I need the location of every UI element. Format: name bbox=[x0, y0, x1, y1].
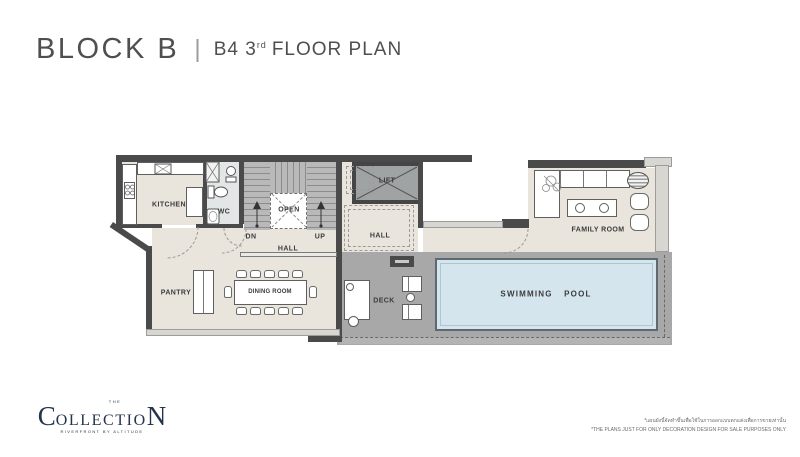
dining-chair bbox=[250, 270, 261, 278]
corridor-floor bbox=[423, 228, 528, 253]
wc-floor bbox=[207, 162, 239, 225]
sofa-chaise bbox=[534, 170, 560, 218]
wall bbox=[116, 155, 472, 162]
floor-label-ordinal: rd bbox=[257, 41, 267, 50]
pantry-cabinet bbox=[193, 270, 214, 314]
logo-name: COLLECTION bbox=[36, 404, 168, 428]
deck-edge-joint bbox=[664, 255, 665, 337]
disclaimer: *แผนผังนี้จัดทำขึ้นเพื่อใช้ในการออกแบบตก… bbox=[591, 417, 786, 435]
room-label-wc: WC bbox=[218, 209, 230, 216]
stair-label-up: UP bbox=[315, 234, 326, 241]
room-label-hall-upper: HALL bbox=[370, 233, 390, 240]
stair-label-dn: DN bbox=[246, 234, 257, 241]
floor-plan-title: B4 3rd FLOOR PLAN bbox=[214, 39, 402, 61]
room-label-lift: LIFT bbox=[379, 178, 395, 185]
wall bbox=[146, 246, 152, 334]
dining-chair bbox=[278, 270, 289, 278]
stair-flight-down bbox=[244, 162, 270, 230]
room-label-open: OPEN bbox=[278, 207, 299, 214]
title-divider: | bbox=[194, 35, 201, 64]
room-label-family-room: FAMILY ROOM bbox=[571, 227, 624, 234]
armchair bbox=[630, 193, 649, 210]
room-label-deck: DECK bbox=[373, 298, 394, 305]
disclaimer-line-thai: *แผนผังนี้จัดทำขึ้นเพื่อใช้ในการออกแบบตก… bbox=[591, 417, 786, 426]
block-title: BLOCK B bbox=[36, 33, 179, 66]
wall bbox=[239, 162, 244, 224]
stair-landing bbox=[270, 162, 307, 194]
side-table bbox=[627, 172, 649, 189]
dining-chair bbox=[264, 307, 275, 315]
dining-chair bbox=[264, 270, 275, 278]
disclaimer-line-english: *THE PLANS JUST FOR ONLY DECORATION DESI… bbox=[591, 426, 786, 435]
dining-chair bbox=[236, 307, 247, 315]
daybed-pillow bbox=[346, 283, 354, 291]
dining-chair bbox=[224, 286, 232, 298]
exterior-wall bbox=[146, 329, 340, 336]
floor-label-suffix: FLOOR PLAN bbox=[272, 39, 402, 61]
room-label-kitchen: KITCHEN bbox=[152, 202, 186, 209]
kitchen-counter bbox=[137, 162, 204, 175]
deck-planter bbox=[390, 256, 414, 267]
dining-chair bbox=[309, 286, 317, 298]
deck-stool bbox=[348, 316, 359, 327]
exterior-wall bbox=[423, 221, 503, 228]
brand-logo: THE COLLECTION RIVERFRONT BY ALTITUDE bbox=[36, 399, 168, 434]
hall-console bbox=[240, 252, 337, 257]
ceiling-detail bbox=[350, 170, 370, 190]
cooktop bbox=[124, 182, 135, 199]
sun-lounger bbox=[402, 276, 422, 292]
wall bbox=[336, 162, 342, 334]
page-header: BLOCK B | B4 3rd FLOOR PLAN bbox=[36, 33, 402, 66]
exterior-wall bbox=[655, 165, 669, 252]
wall bbox=[418, 162, 423, 228]
dining-chair bbox=[292, 307, 303, 315]
dining-chair bbox=[250, 307, 261, 315]
armchair bbox=[630, 214, 649, 231]
sun-lounger bbox=[402, 304, 422, 320]
wall bbox=[196, 224, 243, 228]
dining-chair bbox=[292, 270, 303, 278]
room-label-swimming-pool: SWIMMING POOL bbox=[500, 290, 591, 299]
table-decor bbox=[575, 203, 585, 213]
kitchen-cabinet bbox=[186, 187, 203, 217]
deck-edge-band bbox=[340, 337, 670, 344]
room-label-pantry: PANTRY bbox=[161, 290, 191, 297]
dining-chair bbox=[236, 270, 247, 278]
table-decor bbox=[599, 203, 609, 213]
wall bbox=[528, 160, 646, 168]
floor-label-prefix: B4 3 bbox=[214, 39, 257, 61]
room-label-hall-center: HALL bbox=[278, 246, 298, 253]
dining-chair bbox=[278, 307, 289, 315]
wall bbox=[502, 219, 529, 228]
page: BLOCK B | B4 3rd FLOOR PLAN bbox=[0, 0, 800, 457]
stair-flight-up bbox=[307, 162, 336, 230]
room-label-dining-room: DINING ROOM bbox=[248, 289, 292, 295]
ceiling-detail bbox=[348, 209, 410, 247]
deck-side-table bbox=[406, 293, 415, 302]
